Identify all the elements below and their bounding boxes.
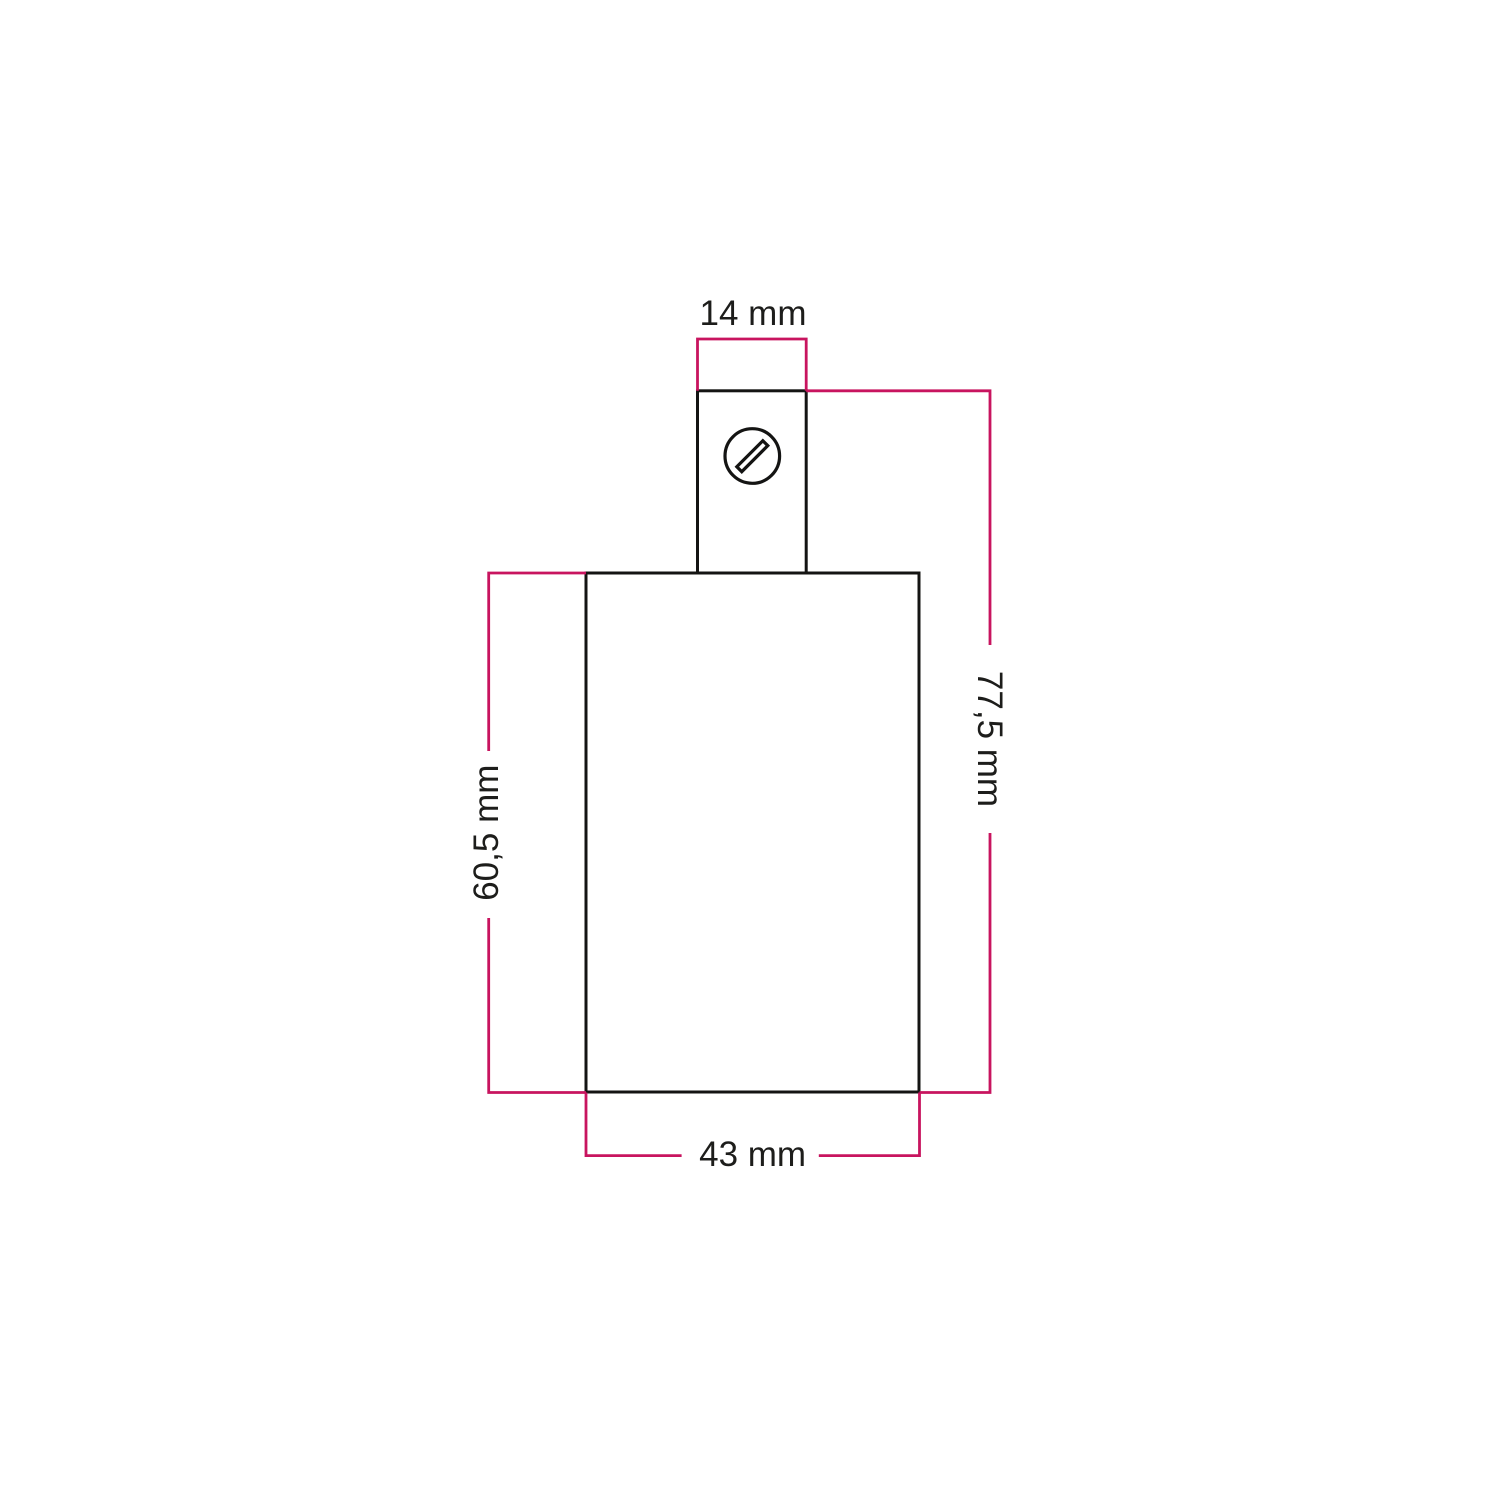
- svg-text:60,5 mm: 60,5 mm: [467, 765, 506, 901]
- svg-text:14 mm: 14 mm: [700, 294, 807, 333]
- svg-text:77,5 mm: 77,5 mm: [970, 671, 1009, 807]
- svg-text:43 mm: 43 mm: [699, 1135, 806, 1174]
